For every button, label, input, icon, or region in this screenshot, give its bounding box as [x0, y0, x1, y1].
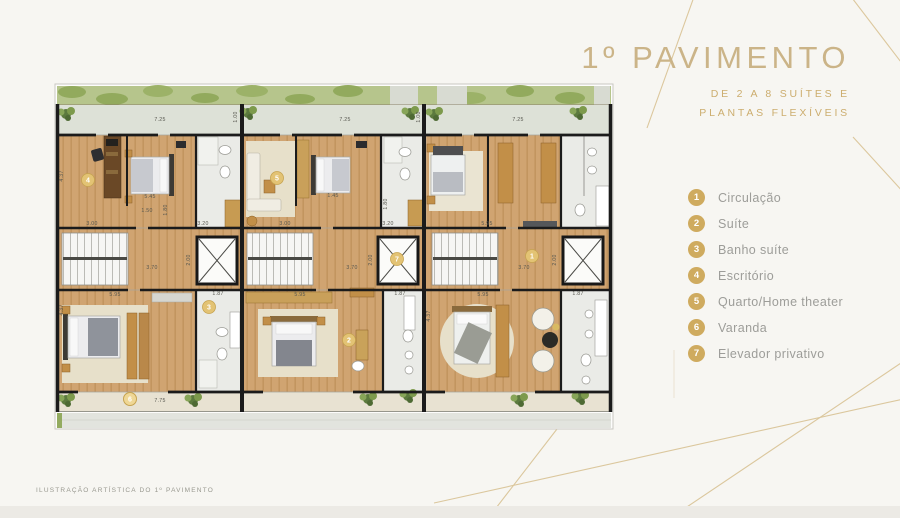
legend-label-7: Elevador privativo	[718, 347, 825, 361]
legend-item-banho-suite: 3 Banho suíte	[688, 241, 843, 258]
svg-text:1.80: 1.80	[163, 204, 169, 215]
bottom-band	[0, 506, 900, 518]
legend-badge-7: 7	[688, 345, 705, 362]
legend-badge-1: 1	[688, 189, 705, 206]
legend-badge-4: 4	[688, 267, 705, 284]
svg-text:3.00: 3.00	[86, 221, 97, 227]
svg-text:1: 1	[530, 254, 534, 261]
legend-item-elevador-privativo: 7 Elevador privativo	[688, 345, 843, 362]
svg-text:5: 5	[275, 176, 279, 183]
svg-text:7.75: 7.75	[154, 398, 165, 404]
legend-badge-6: 6	[688, 319, 705, 336]
balcony-strip	[57, 389, 611, 428]
svg-text:4.37: 4.37	[426, 310, 432, 321]
svg-text:1.45: 1.45	[327, 193, 338, 199]
svg-text:1.87: 1.87	[212, 291, 223, 297]
plan-badge-banho-suite: 3	[203, 301, 216, 314]
svg-text:4: 4	[86, 178, 90, 185]
svg-text:1.80: 1.80	[383, 198, 389, 209]
legend-label-4: Escritório	[718, 269, 774, 283]
svg-text:1.00: 1.00	[233, 111, 239, 122]
svg-text:7.25: 7.25	[512, 117, 523, 123]
svg-text:2.00: 2.00	[552, 254, 558, 265]
legend-label-5: Quarto/Home theater	[718, 295, 843, 309]
svg-text:3.20: 3.20	[197, 221, 208, 227]
legend-label-3: Banho suíte	[718, 243, 789, 257]
legend-item-suite: 2 Suíte	[688, 215, 843, 232]
plan-badge-escritorio: 4	[82, 174, 95, 187]
legend-item-quarto-home-theater: 5 Quarto/Home theater	[688, 293, 843, 310]
svg-text:5.95: 5.95	[294, 292, 305, 298]
svg-text:2: 2	[347, 338, 351, 345]
svg-text:1.00: 1.00	[416, 111, 422, 122]
svg-text:3.00: 3.00	[279, 221, 290, 227]
page: 4 5 3 6 7 1 2 7.25 7.25 7.25 1.00 1.00 4…	[0, 0, 900, 518]
legend-label-2: Suíte	[718, 217, 749, 231]
legend-item-circulacao: 1 Circulação	[688, 189, 843, 206]
room-legend: 1 Circulação 2 Suíte 3 Banho suíte 4 Esc…	[688, 189, 843, 371]
legend-badge-3: 3	[688, 241, 705, 258]
svg-text:7.25: 7.25	[339, 117, 350, 123]
svg-text:2.00: 2.00	[368, 254, 374, 265]
legend-item-varanda: 6 Varanda	[688, 319, 843, 336]
svg-text:1.87: 1.87	[394, 291, 405, 297]
plan-badge-varanda: 6	[124, 393, 137, 406]
legend-item-escritorio: 4 Escritório	[688, 267, 843, 284]
svg-text:7.25: 7.25	[154, 117, 165, 123]
svg-text:5.95: 5.95	[109, 292, 120, 298]
svg-text:7: 7	[395, 257, 399, 264]
svg-text:1.50: 1.50	[141, 208, 152, 214]
plan-badge-suite: 2	[343, 334, 356, 347]
page-title: 1º PAVIMENTO	[581, 40, 850, 76]
legend-label-1: Circulação	[718, 191, 781, 205]
legend-label-6: Varanda	[718, 321, 767, 335]
staircases	[62, 233, 498, 285]
title-block: 1º PAVIMENTO DE 2 A 8 SUÍTES E PLANTAS F…	[581, 40, 850, 123]
garden-strip	[57, 85, 611, 105]
plan-badge-elevador: 7	[391, 253, 404, 266]
svg-text:1.87: 1.87	[572, 291, 583, 297]
page-subtitle: DE 2 A 8 SUÍTES E PLANTAS FLEXÍVEIS	[581, 85, 850, 123]
svg-text:3.20: 3.20	[382, 221, 393, 227]
svg-text:5.95: 5.95	[481, 221, 492, 227]
front-terrace	[57, 105, 611, 135]
svg-text:5.95: 5.95	[477, 292, 488, 298]
legend-badge-5: 5	[688, 293, 705, 310]
svg-text:4.37: 4.37	[59, 170, 65, 181]
svg-text:4.37: 4.37	[59, 304, 65, 315]
svg-text:6: 6	[128, 397, 132, 404]
svg-text:3.70: 3.70	[146, 265, 157, 271]
svg-text:3: 3	[207, 305, 211, 312]
legend-badge-2: 2	[688, 215, 705, 232]
svg-text:5.45: 5.45	[144, 194, 155, 200]
illustration-disclaimer: ILUSTRAÇÃO ARTÍSTICA DO 1º PAVIMENTO	[36, 487, 214, 494]
svg-text:3.70: 3.70	[346, 265, 357, 271]
subtitle-line-2: PLANTAS FLEXÍVEIS	[581, 104, 850, 123]
plan-badge-home-theater: 5	[271, 172, 284, 185]
svg-text:3.70: 3.70	[518, 265, 529, 271]
plan-badge-circulacao: 1	[526, 250, 539, 263]
subtitle-line-1: DE 2 A 8 SUÍTES E	[581, 85, 850, 104]
svg-text:2.00: 2.00	[186, 254, 192, 265]
